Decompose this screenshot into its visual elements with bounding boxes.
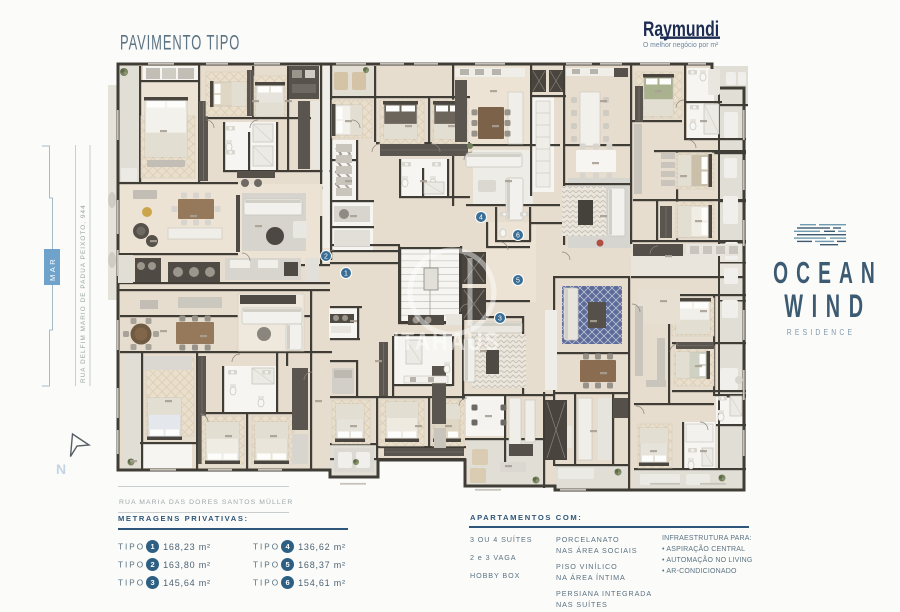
svg-text:MAR: MAR — [48, 257, 57, 281]
svg-text:RESIDENCE: RESIDENCE — [787, 327, 855, 337]
svg-text:4: 4 — [479, 214, 483, 221]
svg-text:RUA DELFIM MARIO DE PADUA PEIX: RUA DELFIM MARIO DE PADUA PEIXOTO, 944 — [80, 204, 87, 383]
svg-text:2: 2 — [324, 253, 328, 260]
svg-text:1: 1 — [344, 270, 348, 277]
svg-text:N: N — [56, 461, 66, 477]
svg-text:3: 3 — [498, 315, 502, 322]
svg-text:WIND: WIND — [784, 288, 872, 324]
svg-text:PAVIMENTO TIPO: PAVIMENTO TIPO — [120, 30, 240, 54]
svg-text:O melhor negócio por m²: O melhor negócio por m² — [643, 41, 719, 49]
svg-text:6: 6 — [516, 232, 520, 239]
svg-text:OCEAN: OCEAN — [773, 257, 883, 291]
svg-text:ITAHAUS: ITAHAUS — [393, 327, 501, 355]
svg-text:5: 5 — [516, 277, 520, 284]
